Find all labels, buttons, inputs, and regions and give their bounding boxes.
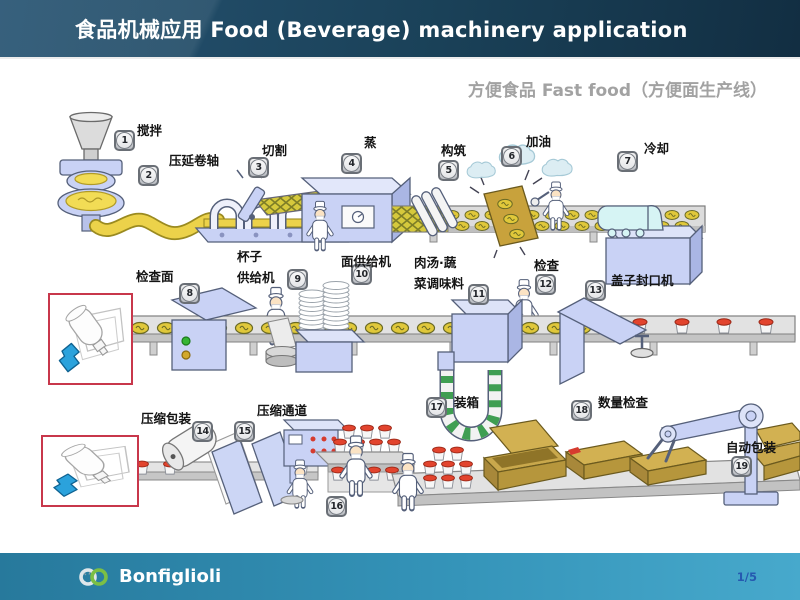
station-label-11: 肉汤·蔬 菜调味料 (414, 252, 464, 294)
station-badge-19: 19 (731, 456, 752, 477)
station-label-12: 检查 (534, 255, 559, 276)
bonfiglioli-logo-icon (76, 565, 112, 589)
station-badge-4: 4 (341, 153, 362, 174)
station-label-4: 蒸 (364, 132, 377, 153)
bonfiglioli-logo: Bonfiglioli (76, 565, 221, 589)
station-badge-13: 13 (585, 280, 606, 301)
station-label-3: 切割 (262, 140, 287, 161)
station-badge-11: 11 (468, 284, 489, 305)
gearmotor-drawing-1 (50, 295, 127, 379)
footer-bar: Bonfiglioli 1/5 (0, 553, 800, 600)
station-label-6: 加油 (526, 131, 551, 152)
station-label-1: 搅拌 (137, 120, 162, 141)
station-label-19: 自动包装 (726, 437, 776, 458)
station-badge-14: 14 (192, 421, 213, 442)
gearmotor-drawing-2 (43, 437, 133, 501)
page-number: 1/5 (737, 570, 757, 584)
station-label-8: 检查面 (136, 266, 174, 287)
station-badge-6: 6 (501, 146, 522, 167)
gearmotor-inset-1 (48, 293, 133, 385)
station-badge-12: 12 (535, 274, 556, 295)
station-label-15: 压缩通道 (257, 400, 307, 421)
station-badge-15: 15 (234, 421, 255, 442)
station-label-13: 盖子封口机 (611, 270, 674, 291)
sealed-cup-cluster (424, 447, 473, 488)
station-label-10: 面供给机 (341, 251, 391, 272)
station-badge-1: 1 (114, 130, 135, 151)
station-badge-2: 2 (138, 165, 159, 186)
gearmotor-inset-2 (41, 435, 139, 507)
station-badge-8: 8 (179, 283, 200, 304)
brand-name: Bonfiglioli (119, 566, 221, 587)
slide: 食品机械应用 Food (Beverage) machinery applica… (0, 0, 800, 600)
station-label-18: 数量检查 (598, 392, 648, 413)
station-label-7: 冷却 (644, 138, 669, 159)
station-label-14: 压缩包装 (141, 408, 191, 429)
station-badge-9: 9 (287, 269, 308, 290)
station-badge-17: 17 (426, 397, 447, 418)
station-label-2: 压延卷轴 (169, 150, 219, 171)
station-label-9: 杯子 供给机 (237, 246, 275, 288)
station-badge-5: 5 (438, 160, 459, 181)
mixer-machine (58, 113, 124, 232)
station-label-17: 装箱 (454, 392, 479, 413)
station-badge-18: 18 (571, 400, 592, 421)
station-badge-7: 7 (617, 151, 638, 172)
station-badge-16: 16 (326, 496, 347, 517)
station-label-5: 构筑 (441, 140, 466, 161)
